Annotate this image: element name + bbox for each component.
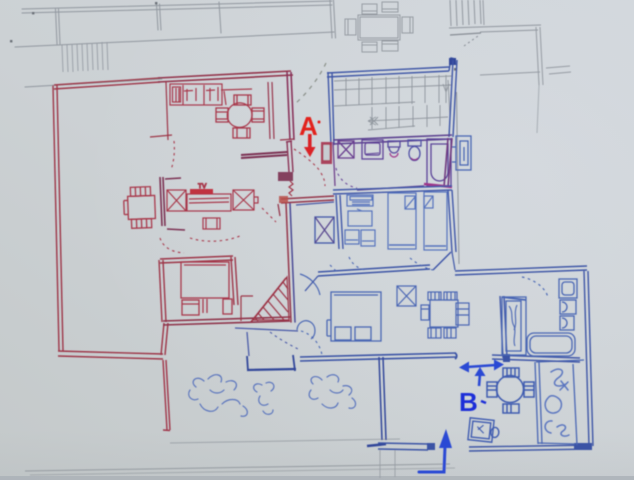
svg-text:B: B [459, 387, 478, 417]
svg-text:TV: TV [198, 183, 207, 190]
